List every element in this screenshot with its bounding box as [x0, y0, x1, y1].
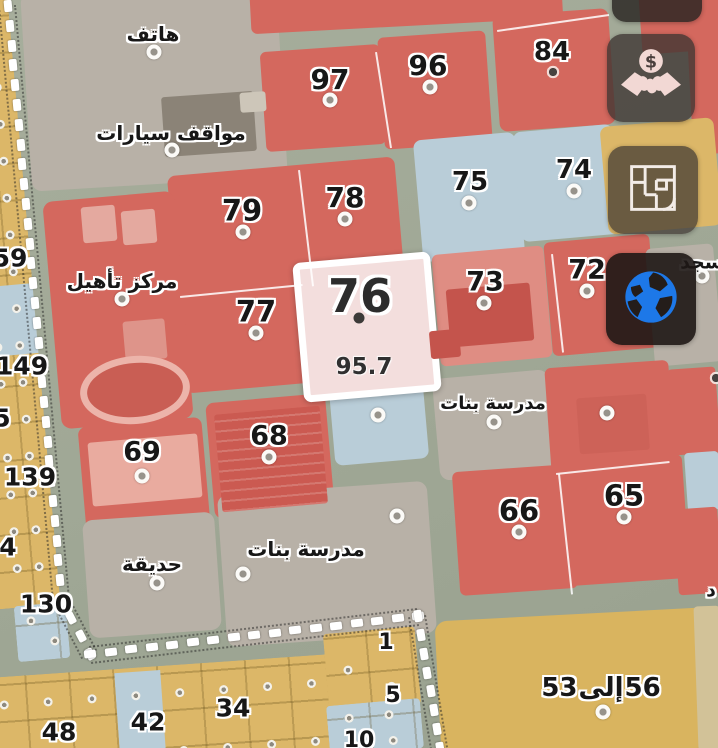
place-label: د	[706, 582, 716, 601]
boundary-dash	[50, 514, 59, 527]
boundary-dash	[413, 609, 423, 622]
cell-dot	[0, 700, 9, 710]
parcel-marker-dot	[150, 576, 165, 591]
cell-dot	[43, 697, 53, 707]
boundary-dash	[186, 637, 199, 646]
cell-dot	[388, 736, 398, 746]
parcel-number-10: 10	[344, 730, 375, 748]
parcel-marker-dot	[115, 292, 130, 307]
parcel-marker-dot	[477, 296, 492, 311]
parcel-marker-dot	[600, 406, 615, 421]
building-65-faint	[576, 394, 650, 455]
parcel-number-69: 69	[123, 439, 161, 466]
parcel-marker-dot	[371, 408, 386, 423]
cell-dot	[21, 414, 31, 424]
boundary-dash	[268, 628, 281, 637]
svg-text:$: $	[645, 52, 657, 72]
boundary-dash	[11, 79, 20, 92]
boundary-dash	[20, 178, 29, 191]
building-73b	[429, 329, 461, 360]
cell-dot	[311, 737, 321, 747]
cell-dot	[0, 156, 9, 166]
boundary-dash	[104, 647, 117, 656]
parcel-number-68: 68	[250, 423, 288, 450]
boundary-dash	[21, 198, 30, 211]
cell-dot	[263, 682, 273, 692]
boundary-dash	[48, 495, 57, 508]
range-part: 56	[624, 675, 660, 701]
cell-dot	[343, 665, 353, 675]
cell-dot	[25, 451, 35, 461]
boundary-dash	[16, 138, 25, 151]
boundary-dash	[371, 616, 384, 625]
boundary-dash	[350, 618, 363, 627]
parcel-marker-dot	[262, 450, 277, 465]
boundary-dash	[43, 435, 52, 448]
boundary-dash	[56, 574, 65, 587]
boundary-dash	[30, 297, 39, 310]
parcel-marker-dot	[487, 415, 502, 430]
cell-dot	[31, 525, 41, 535]
range-part: إلى	[579, 675, 624, 701]
place-label: مدرسة بنات	[247, 539, 365, 559]
place-label: هاتف	[127, 24, 180, 44]
parcel-number-77: 77	[236, 298, 276, 327]
selected-parcel-number: 76	[328, 273, 392, 319]
parcel-marker-dot	[390, 509, 405, 524]
parcel-number-4: 4	[0, 535, 17, 560]
parcel-number-96: 96	[409, 52, 448, 80]
parcel-marker-dot	[567, 184, 582, 199]
parcel-number-5: 5	[385, 685, 400, 707]
boundary-dash	[23, 217, 32, 230]
parcel-number-139: 139	[4, 465, 56, 490]
boundary-dash	[426, 685, 436, 698]
parcel-number-42: 42	[131, 710, 166, 735]
boundary-dash	[27, 257, 36, 270]
map-canvas[interactable]: 9796847574797873727769686665591495139413…	[0, 0, 718, 748]
boundary-dash	[54, 554, 63, 567]
parcel-number-72: 72	[568, 257, 606, 284]
parcel-number-130: 130	[20, 592, 72, 617]
boundary-dash	[14, 118, 23, 131]
parcel-number-75: 75	[452, 169, 488, 195]
parcel-marker-dot	[135, 469, 150, 484]
parcel-number-5: 5	[0, 406, 11, 431]
cell-dot	[0, 83, 2, 93]
boundary-dash	[309, 623, 322, 632]
parcel-marker-dot	[709, 371, 718, 385]
parcel-marker-dot	[462, 196, 477, 211]
range-part: 53	[541, 675, 577, 701]
parcel-number-48: 48	[42, 720, 77, 745]
place-label: حديقة	[122, 554, 182, 574]
parcel-number-84: 84	[534, 39, 570, 65]
boundary-dash	[34, 336, 43, 349]
boundary-dash	[84, 649, 97, 658]
parcel-marker-dot	[236, 567, 251, 582]
rehab-building-1	[80, 205, 117, 244]
boundary-dash	[125, 645, 138, 654]
boundary-dash	[52, 534, 61, 547]
boundary-dash	[422, 666, 432, 679]
parcel-marker-dot	[580, 284, 595, 299]
hidden-top-button[interactable]	[612, 0, 702, 22]
parcel-col-10[interactable]	[326, 698, 424, 748]
boundary-dash	[289, 626, 302, 635]
boundary-dash	[12, 99, 21, 112]
parcel-number-97: 97	[311, 66, 350, 94]
boundary-dash	[432, 723, 442, 736]
cell-dot	[3, 453, 13, 463]
cell-dot	[384, 710, 394, 720]
parcel-number-78: 78	[326, 184, 365, 212]
parcel-number-66: 66	[499, 497, 539, 526]
place-label: مركز تأهيل	[67, 271, 178, 291]
parcel-number-73: 73	[466, 269, 504, 296]
cell-dot	[34, 562, 44, 572]
boundary-dash	[166, 640, 179, 649]
floorplan-icon	[626, 161, 680, 219]
cell-dot	[87, 694, 97, 704]
cell-dot	[267, 740, 277, 748]
cell-dot	[12, 564, 22, 574]
parcel-range-label: 53إلى56	[541, 675, 660, 701]
boundary-dash	[145, 642, 158, 651]
parcel-marker-dot	[546, 65, 560, 79]
cell-dot	[2, 193, 12, 203]
parcel-number-79: 79	[222, 197, 262, 226]
boundary-dash	[41, 415, 50, 428]
floorplan-button[interactable]	[608, 146, 698, 234]
boundary-dash	[207, 635, 220, 644]
globe-button[interactable]	[606, 253, 696, 345]
cell-dot	[5, 230, 15, 240]
boundary-dash	[7, 39, 16, 52]
cell-dot	[307, 679, 317, 689]
parcel-marker-dot	[596, 705, 611, 720]
rehab-building-2	[121, 209, 158, 246]
cell-dot	[50, 636, 60, 646]
parcel-number-59: 59	[0, 246, 27, 271]
cell-dot	[344, 713, 354, 723]
boundary-dash	[429, 704, 439, 717]
cell-dot	[175, 688, 185, 698]
place-label: مواقف سيارات	[96, 123, 245, 143]
parcel-number-34: 34	[216, 696, 251, 721]
boundary-dash	[39, 396, 48, 409]
parking-building-roof	[239, 91, 266, 113]
frontage-dimension: 95.7	[336, 354, 393, 380]
deals-button[interactable]: $	[607, 34, 695, 122]
parcel-number-1: 1	[378, 632, 393, 654]
parcel-right-sliver-blue[interactable]	[684, 451, 718, 511]
place-label: مدرسة بنات	[440, 395, 546, 413]
parcel-right-bottom-sliver[interactable]	[693, 606, 718, 748]
parcel-marker-dot	[147, 45, 162, 60]
boundary-dash	[3, 0, 12, 12]
boundary-dash	[9, 59, 18, 72]
parcel-number-65: 65	[604, 482, 644, 511]
boundary-dash	[419, 647, 429, 660]
boundary-dash	[32, 316, 41, 329]
boundary-dash	[18, 158, 27, 171]
cell-dot	[0, 119, 5, 129]
parcel-number-74: 74	[556, 157, 592, 183]
boundary-dash	[29, 277, 38, 290]
parcel-number-149: 149	[0, 354, 48, 379]
cell-dot	[0, 379, 6, 389]
boundary-dash	[248, 630, 261, 639]
boundary-dash	[330, 621, 343, 630]
boundary-dash	[5, 19, 14, 32]
cell-dot	[223, 743, 233, 748]
globe-icon	[622, 268, 680, 330]
handshake-dollar-icon: $	[621, 47, 681, 109]
